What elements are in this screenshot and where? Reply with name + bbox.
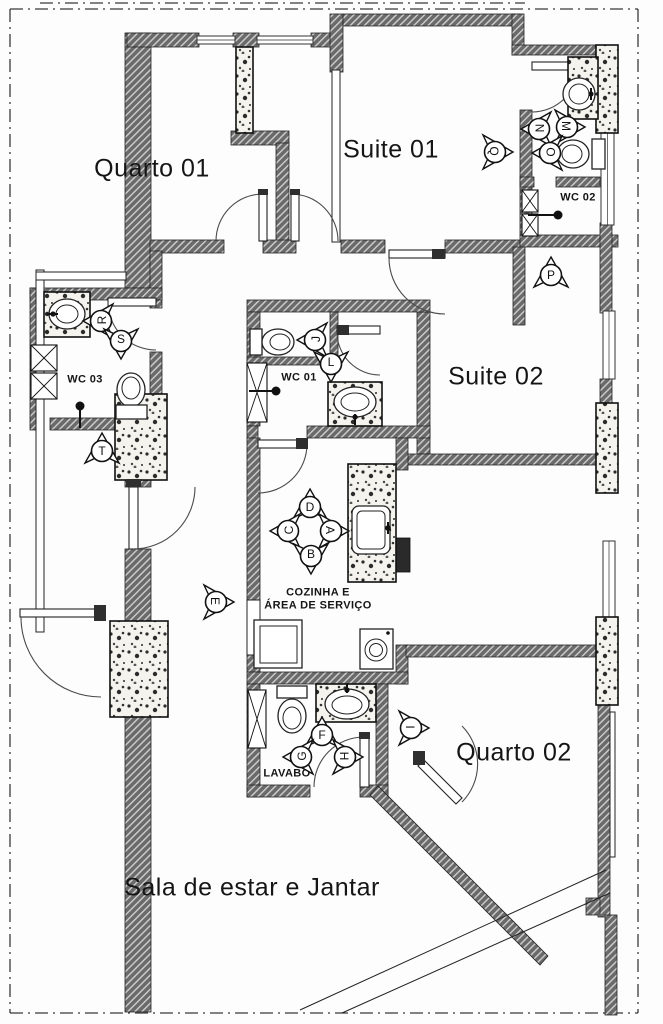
toilet: [250, 329, 294, 355]
shaft: [247, 363, 267, 422]
diagonal-line-2: [342, 893, 610, 1013]
svg-text:L: L: [328, 355, 335, 369]
svg-text:S: S: [117, 332, 125, 346]
column: [596, 617, 618, 705]
kitchen-sink: [352, 506, 391, 554]
marker-O: O: [529, 131, 573, 175]
marker-E: E: [193, 580, 237, 624]
marker-P: P: [529, 254, 573, 298]
shaft: [522, 190, 538, 212]
svg-text:Q: Q: [487, 146, 501, 155]
column: [236, 47, 253, 133]
door-balcony: [20, 605, 106, 697]
svg-text:T: T: [98, 444, 106, 458]
door-sala: [126, 479, 195, 549]
toilet: [116, 373, 147, 419]
floor-plan: .w{fill:url(#hatch);stroke:#222;stroke-w…: [0, 0, 663, 1024]
marker-G: G: [280, 735, 324, 779]
washing-machine: [360, 629, 393, 669]
svg-text:M: M: [559, 121, 573, 131]
marker-T: T: [80, 430, 124, 474]
column: [596, 45, 618, 133]
shaft: [248, 690, 266, 748]
shaft: [31, 373, 57, 399]
svg-text:O: O: [544, 147, 558, 156]
window-strip: [610, 712, 615, 857]
door-quarto-01: [216, 189, 268, 241]
door-suite-01: [290, 189, 338, 241]
marker-B: B: [289, 533, 333, 577]
marker-Q: Q: [472, 130, 516, 174]
svg-text:P: P: [547, 268, 555, 282]
marker-H: H: [322, 735, 366, 779]
column: [110, 621, 168, 717]
marker-S: S: [99, 318, 143, 362]
marker-I: I: [388, 706, 432, 750]
column: [596, 403, 618, 493]
svg-text:I: I: [403, 725, 417, 728]
svg-text:G: G: [295, 751, 309, 760]
shaft: [31, 345, 57, 371]
svg-text:H: H: [337, 752, 351, 761]
svg-text:B: B: [307, 547, 315, 561]
door-cozinha: [258, 438, 308, 493]
shaft: [522, 214, 538, 236]
stove: [254, 620, 302, 668]
svg-text:E: E: [208, 597, 222, 605]
marker-L: L: [309, 341, 353, 385]
diagonal-line-1: [300, 870, 606, 1010]
